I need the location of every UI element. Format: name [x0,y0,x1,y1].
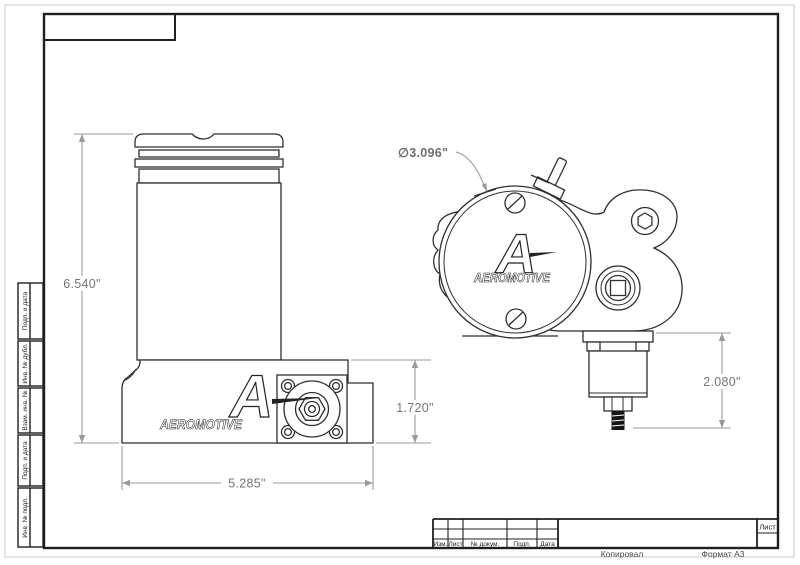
side-view-fuel-pump: A AEROMOTIVE [122,134,373,443]
dimension-label-outlet-height: 2.080" [703,375,741,389]
sidebar-cell-label: Подп. и дата [22,441,29,480]
footer-format-label: Формат А3 [702,549,745,559]
sidebar-cell-label: Инв. № дубл. [21,343,29,383]
dimension-label-height: 6.540" [63,277,101,291]
canister-body [137,183,281,360]
title-block-col-ndokum: № докум. [471,541,500,548]
front-view-fuel-pump: A AEROMOTIVE [433,153,682,430]
logo-wordmark: AEROMOTIVE [159,417,243,432]
sidebar-stamp-column: Подп. и дата Инв. № дубл. Взам. инв. № П… [18,283,43,547]
lower-fitting [583,331,653,430]
footer-copied-label: Копировал [601,549,644,559]
dimension-label-base-height: 1.720" [396,401,434,415]
logo-wordmark: AEROMOTIVE [473,271,550,285]
title-block-col-list: Лист [448,541,462,548]
dimension-label-diameter: ∅3.096" [398,146,448,160]
canister-cap [135,134,283,147]
outlet-port [596,266,640,310]
cover-screw-top [505,193,525,213]
sidebar-cell-label: Подп. и дата [22,291,29,330]
sidebar-cell-label: Инв. № подл. [22,497,29,538]
inlet-port-fitting [284,381,340,437]
sheet-number-label: Лист [759,523,776,532]
cover-screw-bottom [506,309,526,329]
dimension-outlet-height: 2.080" [633,333,748,428]
frame-top-left-box [44,14,175,40]
technical-drawing: Подп. и дата Инв. № дубл. Взам. инв. № П… [0,0,800,565]
cap-ring [135,159,283,167]
title-block: Изм. Лист № докум. Подп. Дата Лист [433,519,778,548]
dimension-housing-diameter: ∅3.096" [398,146,487,192]
mount-bolt [632,208,659,235]
dimension-overall-width: 5.285" [122,446,373,491]
title-block-col-podp: Подп. [513,541,530,548]
cap-band [139,169,279,183]
title-block-col-izm: Изм. [434,541,448,548]
cap-ring [139,150,279,157]
sidebar-cell-label: Взам. инв. № [22,390,29,430]
drawing-sheet: Подп. и дата Инв. № дубл. Взам. инв. № П… [0,0,800,565]
dimension-label-width: 5.285" [228,477,266,491]
title-block-col-data: Дата [540,541,555,548]
